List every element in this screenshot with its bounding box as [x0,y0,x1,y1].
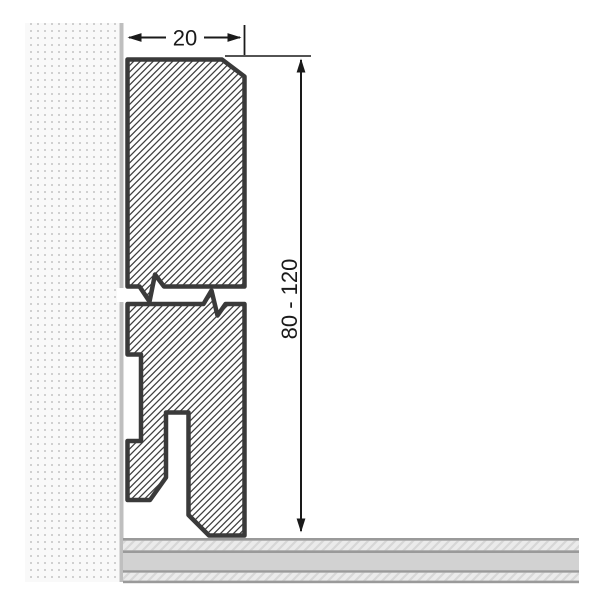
height-dimension-label: 80 - 120 [277,259,302,340]
arrow-left-icon [128,33,142,42]
wall-section [25,23,123,582]
floor-section [123,538,579,583]
width-dimension: 20 [128,25,245,55]
width-dimension-label: 20 [173,26,197,51]
arrow-up-icon [297,59,306,73]
break-gap [117,288,126,302]
skirting-profile-lower [128,291,245,536]
floor-bottom-layer [123,573,579,581]
floor-border-line [123,581,579,584]
arrow-right-icon [228,33,242,42]
floor-top-layer [123,541,579,551]
floor-border-line [123,538,579,541]
skirting-profile-upper [128,60,245,302]
floor-border-line [123,550,579,553]
arrow-down-icon [297,519,306,533]
skirting-cross-section-svg: 20 80 - 120 [0,0,604,604]
floor-core-layer [123,553,579,570]
floor-border-line [123,570,579,573]
technical-diagram: 20 80 - 120 [0,0,604,604]
wall-edge [120,23,124,582]
